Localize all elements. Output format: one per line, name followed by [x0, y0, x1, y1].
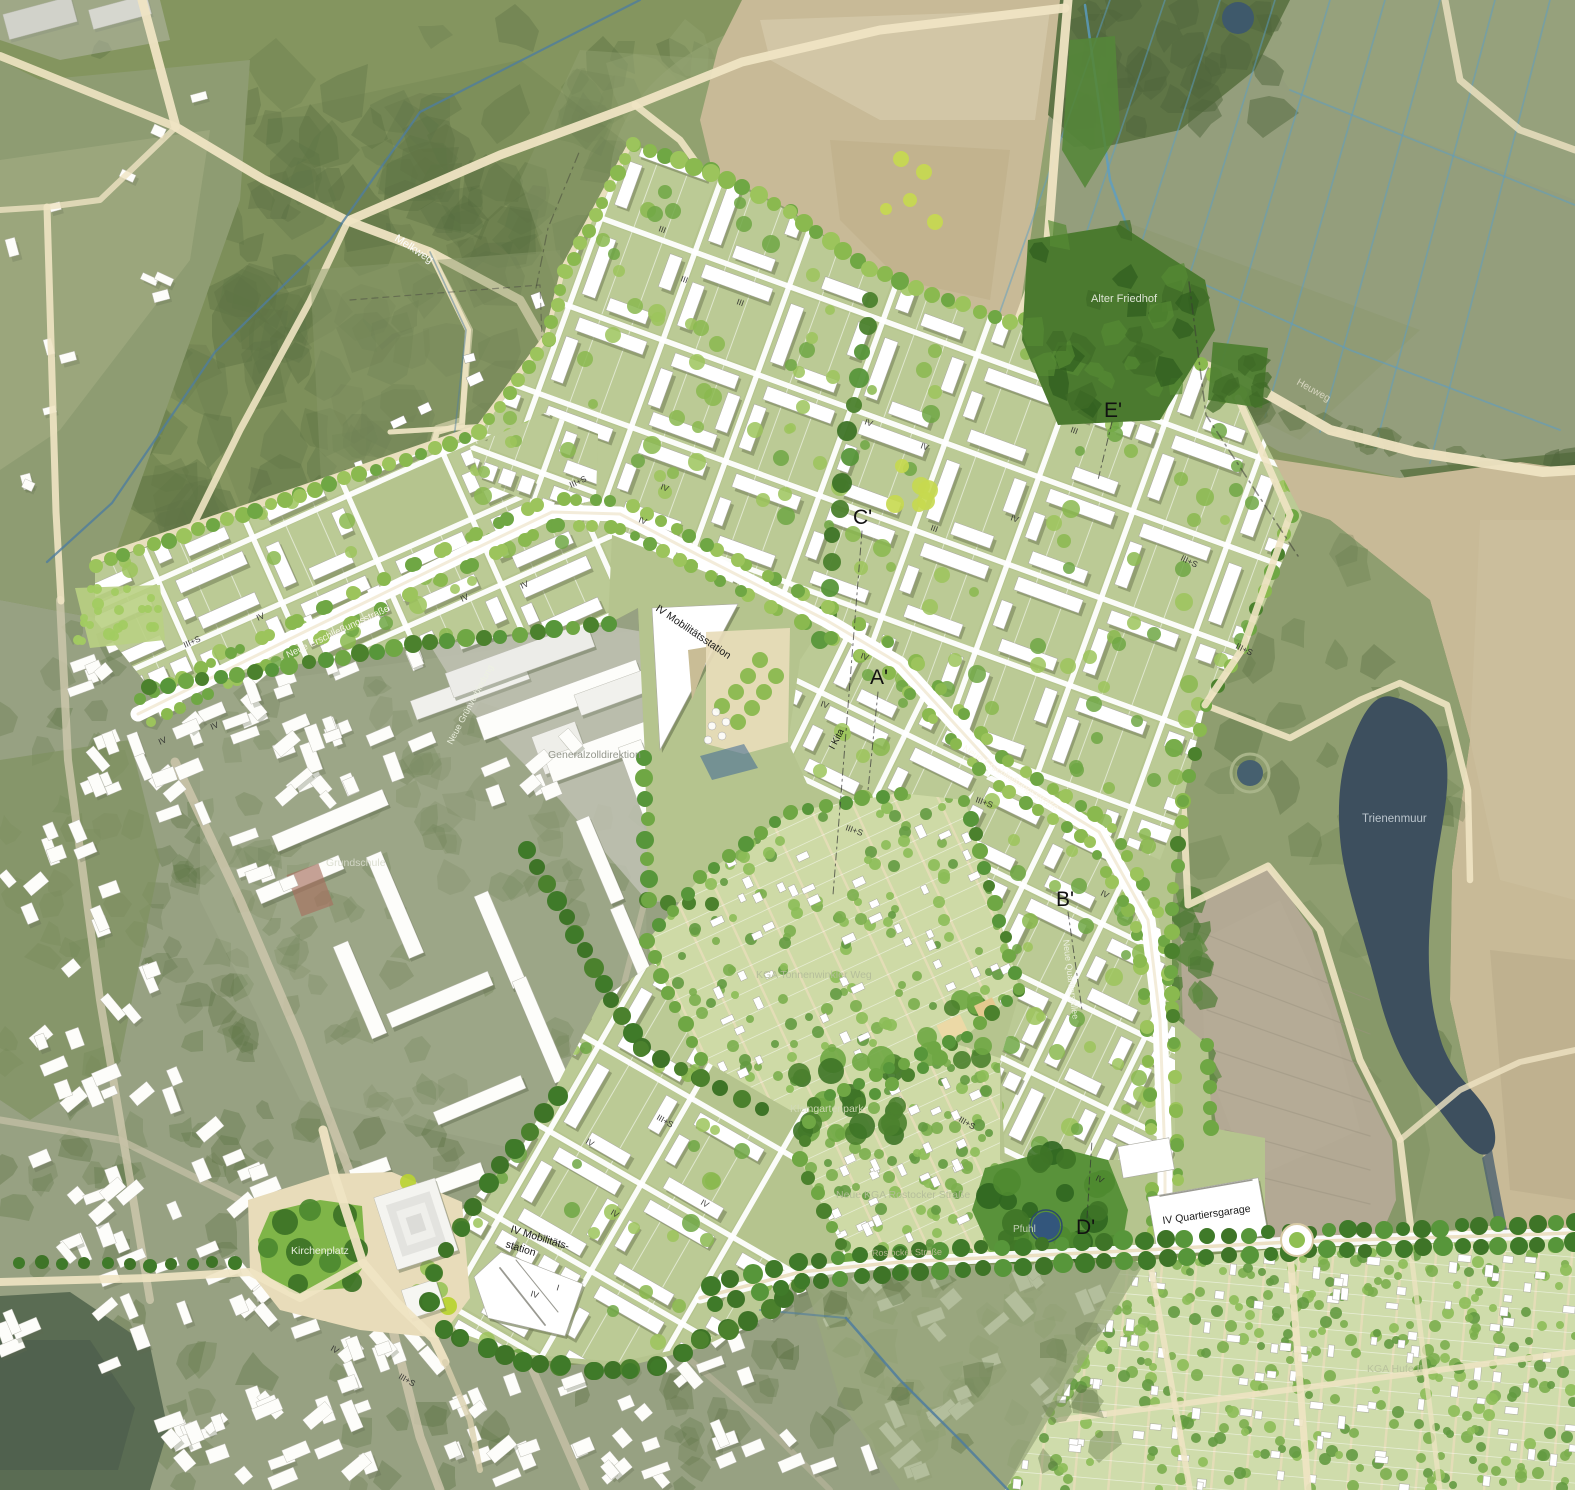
svg-text:Pfuhl: Pfuhl [1013, 1224, 1036, 1235]
svg-text:Rostocker Straße: Rostocker Straße [872, 1247, 942, 1258]
svg-text:Neue KGA Rostocker Straße: Neue KGA Rostocker Straße [836, 1189, 970, 1201]
svg-text:E': E' [1104, 399, 1122, 422]
svg-text:Alter Friedhof: Alter Friedhof [1091, 293, 1158, 305]
svg-text:C': C' [853, 506, 872, 529]
svg-text:A': A' [870, 666, 888, 689]
svg-text:Trienenmuur: Trienenmuur [1362, 813, 1427, 825]
svg-text:Kirchenplatz: Kirchenplatz [291, 1245, 349, 1257]
svg-text:B': B' [1056, 888, 1074, 911]
svg-text:Grundschule: Grundschule [326, 857, 386, 869]
svg-text:Generalzolldirektion: Generalzolldirektion [548, 749, 641, 761]
svg-text:Kleingartenpark: Kleingartenpark [790, 1103, 864, 1115]
svg-text:KGA Hufe II: KGA Hufe II [1367, 1363, 1422, 1375]
svg-text:D': D' [1076, 1216, 1095, 1239]
svg-text:KGA Tonnenwinkler Weg: KGA Tonnenwinkler Weg [756, 969, 872, 981]
